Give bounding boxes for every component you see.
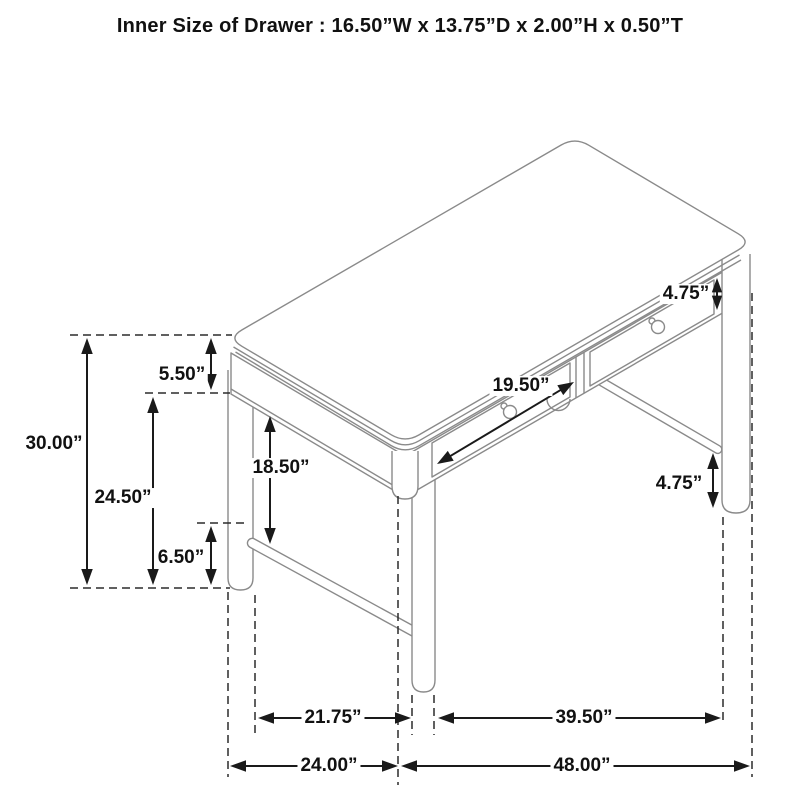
top-apron-height-label: 5.50” (156, 365, 208, 385)
inner-leg-width-label: 39.50” (552, 708, 615, 728)
apron-to-stretcher-arrow (264, 416, 276, 544)
right-stretcher-bar (597, 377, 724, 455)
drawer-front-width-label: 19.50” (489, 376, 552, 396)
desk-drawing (228, 141, 750, 692)
left-stretcher-bar (246, 537, 422, 639)
front-right-leg (722, 254, 750, 513)
inner-leg-depth-label: 21.75” (301, 708, 364, 728)
drawer-face-height-label: 4.75” (660, 284, 712, 304)
dimension-diagram: Inner Size of Drawer : 16.50”W x 13.75”D… (0, 0, 800, 800)
stretcher-to-floor-arrow (707, 453, 719, 508)
desk-drawing-svg (0, 0, 800, 800)
overall-height-label: 30.00” (22, 434, 85, 454)
stretcher-height-label: 6.50” (155, 548, 207, 568)
overall-depth-label: 24.00” (297, 756, 360, 776)
overall-height-arrow (81, 338, 93, 585)
floor-to-apron-label: 24.50” (91, 488, 154, 508)
apron-to-stretcher-label: 18.50” (249, 458, 312, 478)
right-knob-icon (652, 321, 665, 334)
front-corner-post (392, 451, 418, 499)
overall-width-label: 48.00” (550, 756, 613, 776)
stretcher-to-floor-label: 4.75” (653, 474, 705, 494)
